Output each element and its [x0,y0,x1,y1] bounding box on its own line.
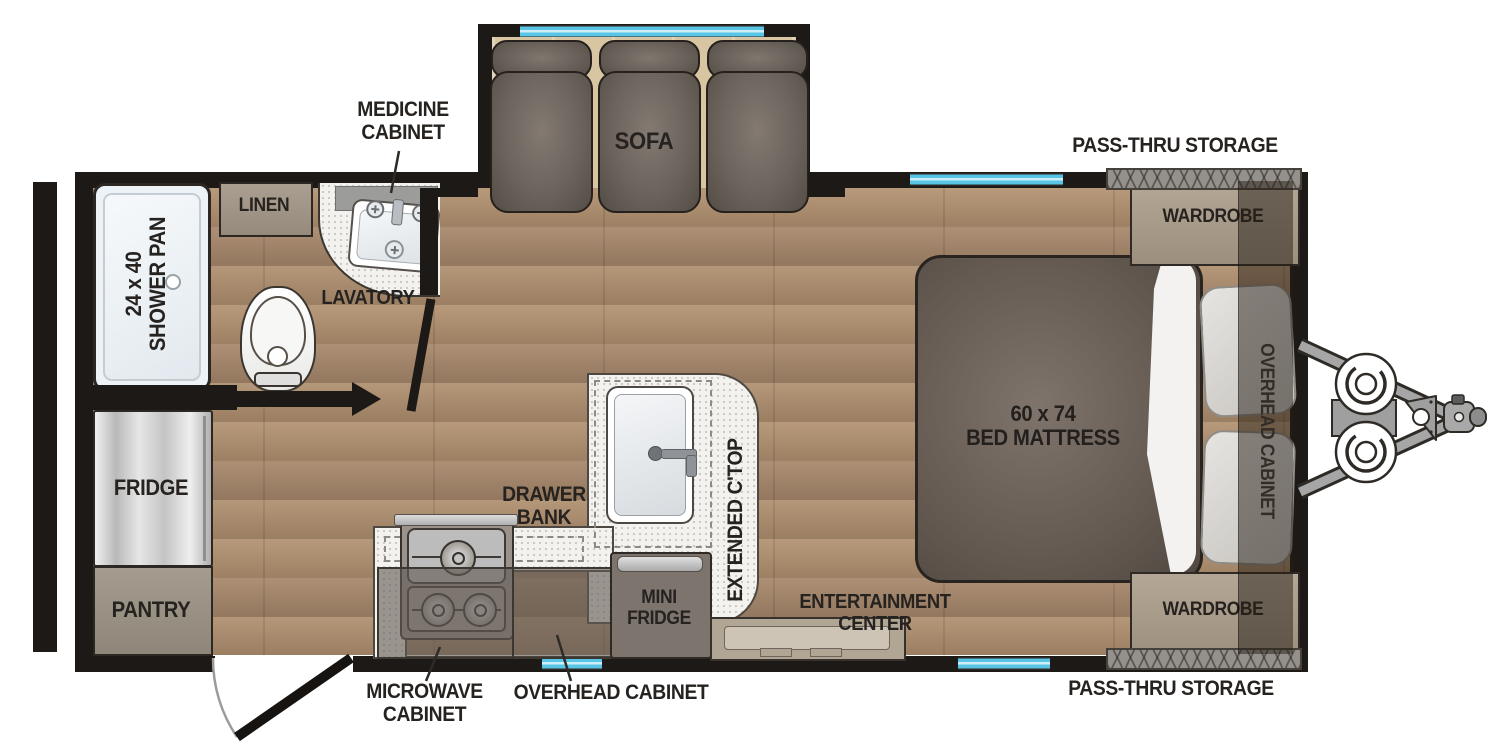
medicine-cabinet-label: MEDICINE CABINET [335,99,471,144]
sofa-label: SOFA [598,129,690,155]
bedroom-window-top [910,173,1063,186]
door-arc [213,658,237,737]
slideout-window [520,25,764,37]
overhead-cabinet-kitchen-label: OVERHEAD CABINET [503,682,718,705]
microwave-cabinet-label: MICROWAVE CABINET [352,681,496,726]
pantry-label: PANTRY [101,598,200,622]
bathroom-wall [420,188,438,295]
mini-fridge-label: MINI FRIDGE [615,588,703,629]
overhead-cabinet-kitchen [512,567,614,659]
tongue-jack [1406,396,1436,440]
wall-rear [75,172,93,672]
fridge-label: FRIDGE [101,476,200,500]
microwave-cabinet [377,567,514,659]
hitch-coupler [1444,395,1486,432]
linen-label: LINEN [224,196,303,217]
bathroom-wall [438,188,466,197]
lavatory-label: LAVATORY [320,288,416,310]
extended-ctop-label: EXTENDED C'TOP [725,423,749,616]
kitchen-faucet [686,455,697,477]
toilet-flush [267,346,288,367]
shower-label: 24 x 40 SHOWER PAN [122,192,176,376]
toilet [240,286,312,388]
entry-door-leaf [237,658,351,737]
overhead-cabinet-label: OVERHEAD CABINET [1252,324,1276,537]
mini-fridge-top [617,556,703,572]
faucet-spout [391,199,404,226]
sofa-cushion [598,40,699,213]
sofa [490,40,808,213]
pass-thru-label-bottom: PASS-THRU STORAGE [1063,678,1278,701]
rv-floorplan: WARDROBE WARDROBE OVERHEAD CABINET 60 x … [0,0,1500,754]
slideout-jamb-right [808,188,845,197]
wall-bottom-left [75,656,215,672]
pass-thru-label-top: PASS-THRU STORAGE [1067,135,1282,158]
sofa-cushion [490,40,591,213]
trailer-tongue [1300,345,1449,492]
propane-tanks [1336,354,1396,482]
entertainment-center-label: ENTERTAINMENT CENTER [767,592,982,635]
bedroom-window-bottom [958,657,1050,670]
drawer-bank-label: DRAWER BANK [498,484,590,529]
bed-label: 60 x 74 BED MATTRESS [957,402,1128,450]
sofa-cushion [706,40,807,213]
rear-bumper [33,182,57,652]
bathroom-wall [93,385,237,410]
toilet-base [254,372,302,387]
entry-door-swing [213,658,351,737]
